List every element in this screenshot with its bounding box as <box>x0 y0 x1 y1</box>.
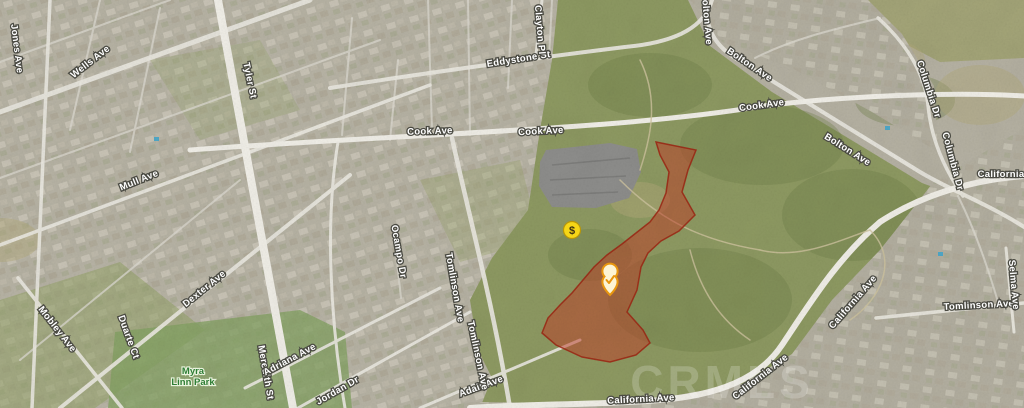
satellite-map[interactable]: CRMLS Wells AveTyler StJones AveMull Ave… <box>0 0 1024 408</box>
map-viewport: CRMLS Wells AveTyler StJones AveMull Ave… <box>0 0 1024 408</box>
street-label: Cook Ave <box>407 125 453 138</box>
dollar-icon: $ <box>569 225 575 237</box>
selected-listing-pin[interactable] <box>602 264 617 295</box>
park-label: Linn Park <box>171 377 215 388</box>
street-label: California <box>978 169 1024 180</box>
price-marker[interactable]: $ <box>564 222 581 239</box>
park-label: Myra <box>182 366 205 377</box>
